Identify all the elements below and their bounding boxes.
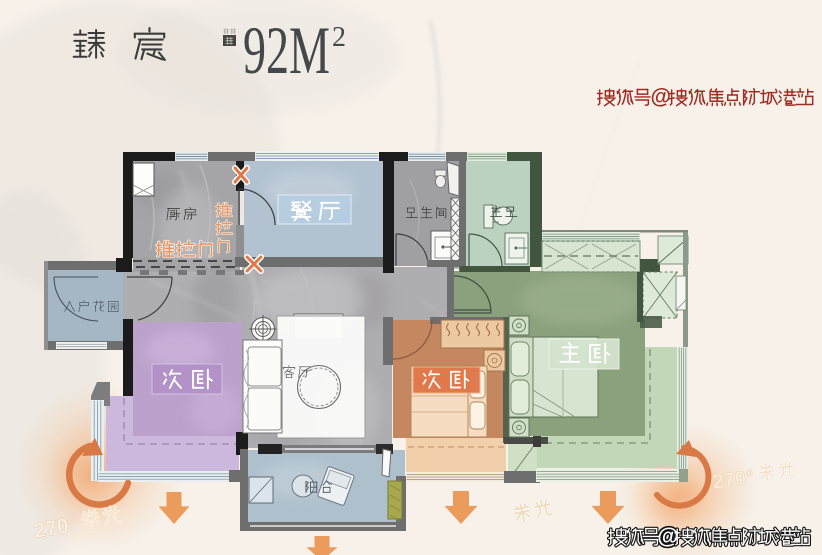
- svg-text:@: @: [651, 86, 671, 109]
- svg-text:2: 2: [332, 22, 346, 53]
- svg-text:92M: 92M: [243, 12, 330, 88]
